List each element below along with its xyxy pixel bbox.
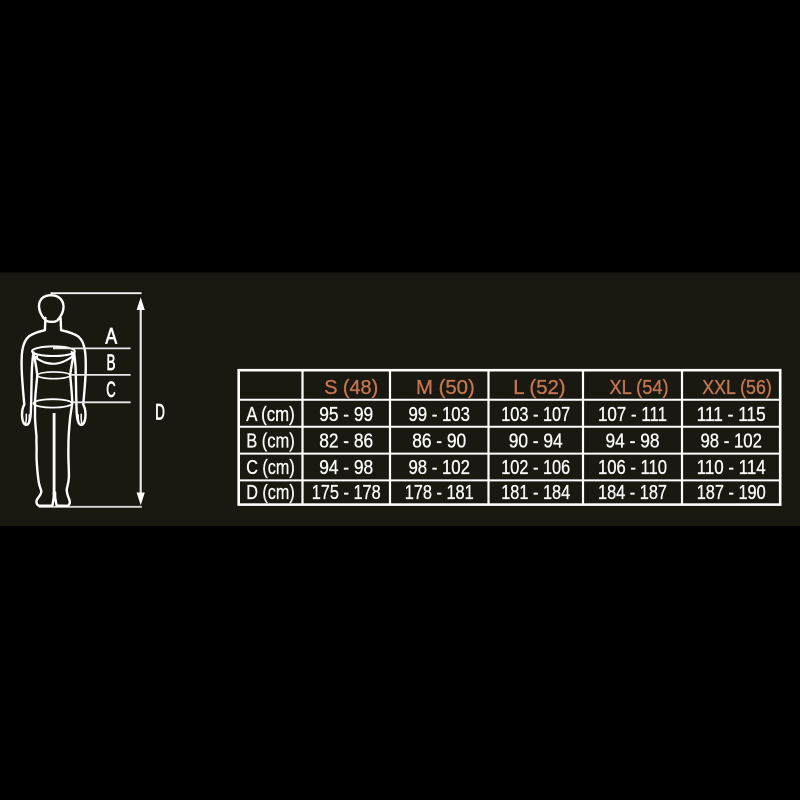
svg-text:98 - 102: 98 - 102	[700, 431, 762, 453]
svg-text:99 - 103: 99 - 103	[408, 404, 470, 426]
svg-text:95 - 99: 95 - 99	[319, 404, 373, 426]
svg-text:94 - 98: 94 - 98	[319, 457, 373, 479]
svg-text:XL (54): XL (54)	[610, 377, 669, 399]
svg-text:181 - 184: 181 - 184	[501, 482, 570, 504]
svg-text:94 - 98: 94 - 98	[606, 431, 660, 453]
svg-text:184 - 187: 184 - 187	[598, 482, 667, 504]
svg-text:D: D	[155, 400, 165, 425]
svg-text:XXL (56): XXL (56)	[702, 377, 772, 399]
svg-text:M (50): M (50)	[416, 377, 475, 399]
svg-text:B: B	[107, 350, 116, 375]
svg-text:L (52): L (52)	[513, 377, 565, 399]
svg-text:A (cm): A (cm)	[246, 404, 295, 426]
svg-text:111 - 115: 111 - 115	[697, 404, 766, 426]
svg-text:A: A	[105, 323, 117, 348]
svg-text:98 - 102: 98 - 102	[408, 457, 470, 479]
svg-text:S (48): S (48)	[324, 377, 378, 399]
svg-text:178 - 181: 178 - 181	[405, 482, 474, 504]
svg-text:C (cm): C (cm)	[246, 457, 295, 479]
svg-text:103 - 107: 103 - 107	[501, 404, 570, 426]
svg-text:187 - 190: 187 - 190	[697, 482, 766, 504]
svg-text:D (cm): D (cm)	[246, 482, 295, 504]
svg-text:110 - 114: 110 - 114	[697, 457, 766, 479]
svg-text:B (cm): B (cm)	[246, 431, 295, 453]
svg-text:86 - 90: 86 - 90	[412, 431, 466, 453]
svg-text:107 - 111: 107 - 111	[598, 404, 667, 426]
svg-text:175 - 178: 175 - 178	[312, 482, 381, 504]
svg-text:106 - 110: 106 - 110	[598, 457, 667, 479]
svg-text:82 - 86: 82 - 86	[319, 431, 373, 453]
svg-text:C: C	[106, 377, 115, 402]
svg-text:90 - 94: 90 - 94	[509, 431, 563, 453]
svg-text:102 - 106: 102 - 106	[501, 457, 570, 479]
